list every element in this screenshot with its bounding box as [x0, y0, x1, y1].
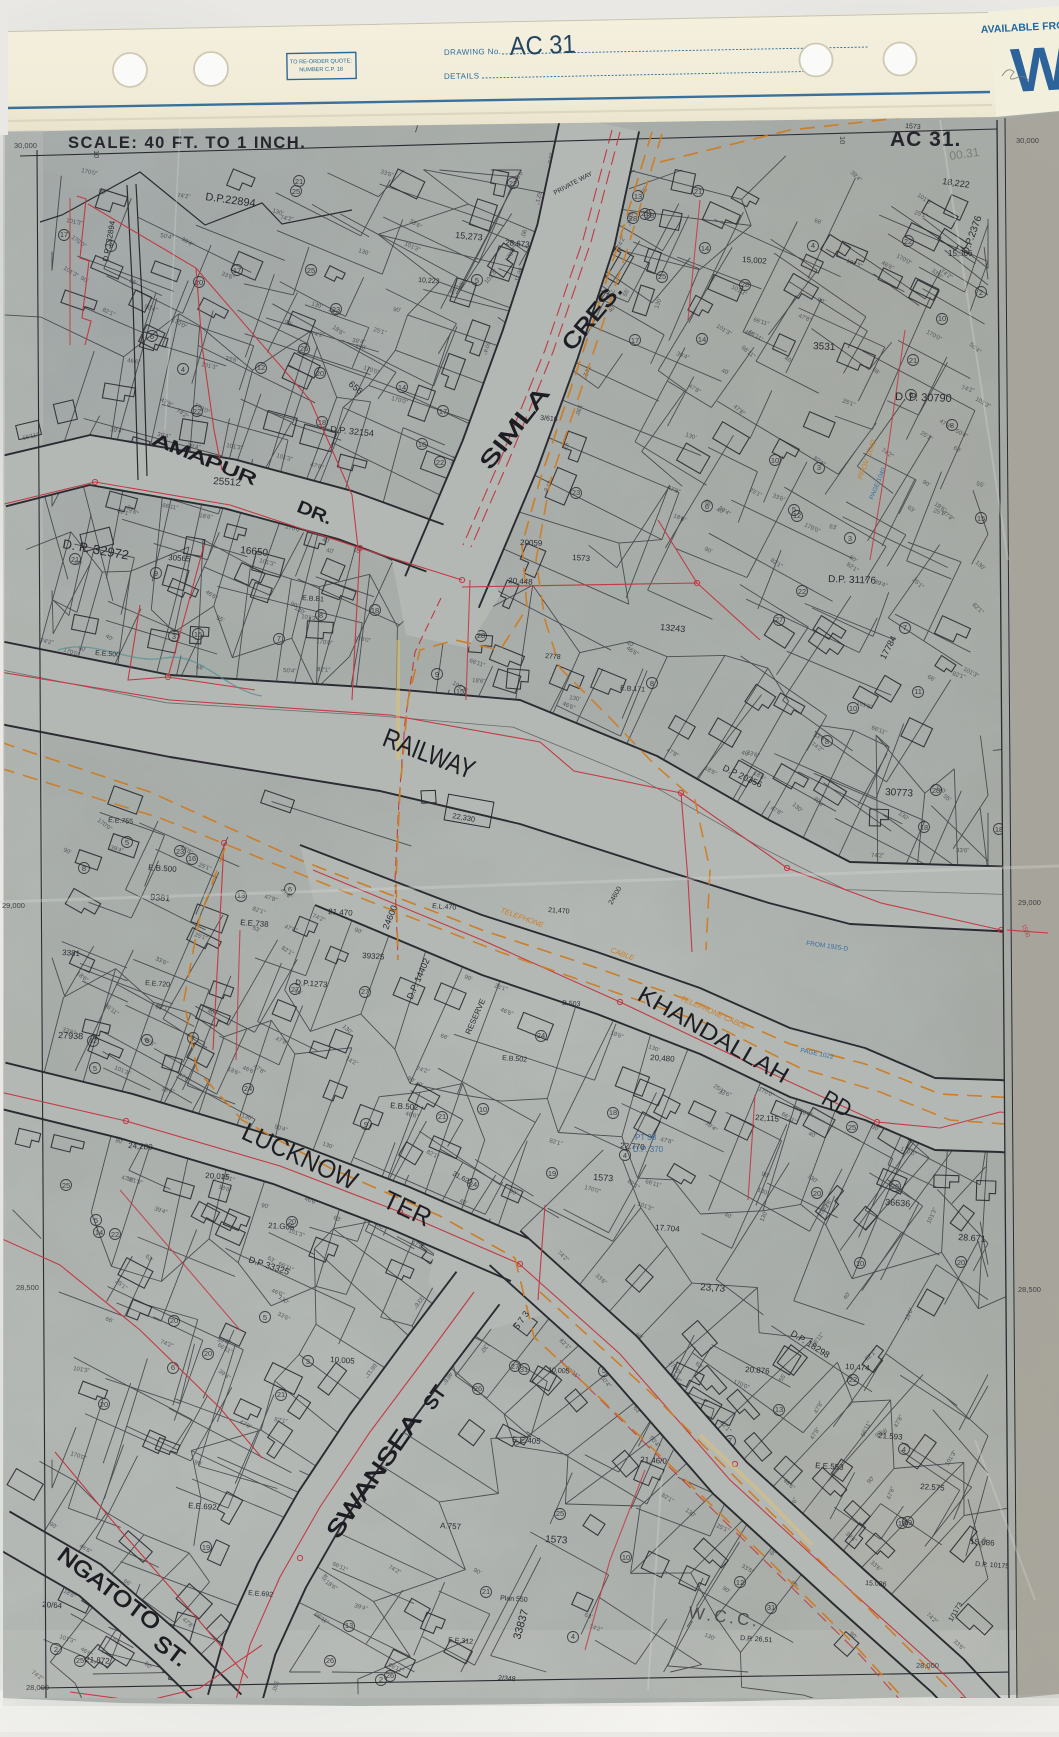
- svg-text:10: 10: [771, 456, 779, 465]
- svg-text:17: 17: [233, 266, 241, 275]
- svg-text:21: 21: [71, 555, 79, 564]
- svg-text:21: 21: [277, 1390, 285, 1399]
- svg-text:21,46/0: 21,46/0: [640, 1455, 668, 1466]
- svg-text:19: 19: [548, 1169, 556, 1178]
- svg-text:23,73: 23,73: [700, 1282, 726, 1295]
- svg-text:18'6": 18'6": [472, 678, 486, 685]
- svg-text:31: 31: [767, 1603, 775, 1612]
- svg-text:3: 3: [172, 632, 176, 641]
- svg-text:1573: 1573: [905, 123, 921, 131]
- svg-text:DETAILS: DETAILS: [444, 71, 480, 81]
- svg-text:21.G05: 21.G05: [268, 1221, 295, 1232]
- svg-text:15: 15: [977, 514, 985, 523]
- svg-text:6: 6: [150, 332, 154, 341]
- svg-text:20: 20: [204, 1349, 212, 1358]
- svg-text:28: 28: [477, 631, 485, 640]
- svg-text:2: 2: [54, 1645, 58, 1654]
- svg-text:8: 8: [650, 679, 654, 688]
- svg-text:20: 20: [957, 1258, 965, 1267]
- svg-text:33'6": 33'6": [956, 848, 969, 854]
- svg-text:1573: 1573: [572, 553, 591, 563]
- svg-text:74'2": 74'2": [871, 853, 884, 859]
- svg-text:8: 8: [950, 421, 954, 430]
- svg-text:14: 14: [398, 383, 406, 392]
- svg-text:9: 9: [364, 1120, 368, 1129]
- svg-text:17.704: 17.704: [655, 1223, 681, 1234]
- svg-text:26: 26: [300, 344, 308, 353]
- svg-text:20,480: 20,480: [650, 1053, 676, 1064]
- svg-text:10.474: 10.474: [845, 1362, 871, 1373]
- svg-text:26: 26: [474, 1384, 482, 1393]
- svg-text:23: 23: [332, 305, 340, 314]
- svg-text:1573: 1573: [545, 1534, 568, 1547]
- svg-text:22.575: 22.575: [920, 1482, 946, 1493]
- svg-text:28,000: 28,000: [916, 1661, 939, 1670]
- svg-text:12: 12: [257, 363, 265, 372]
- svg-text:82'1": 82'1": [317, 667, 331, 674]
- svg-text:5: 5: [94, 1216, 98, 1225]
- svg-text:10,223: 10,223: [418, 277, 440, 285]
- svg-text:10: 10: [849, 704, 857, 713]
- svg-text:10: 10: [938, 314, 946, 323]
- svg-text:3531: 3531: [813, 341, 836, 353]
- svg-text:28: 28: [741, 280, 749, 289]
- svg-text:5: 5: [263, 1313, 267, 1322]
- svg-text:16: 16: [188, 854, 196, 863]
- svg-text:9: 9: [435, 670, 439, 679]
- svg-text:22,770: 22,770: [620, 1141, 646, 1152]
- svg-text:14: 14: [698, 335, 706, 344]
- svg-text:8: 8: [82, 864, 86, 873]
- svg-text:20,448: 20,448: [508, 576, 534, 587]
- svg-text:10,005: 10,005: [548, 1367, 570, 1375]
- svg-text:36636: 36636: [885, 1197, 911, 1209]
- svg-text:23: 23: [176, 847, 184, 856]
- svg-text:25: 25: [76, 1656, 84, 1665]
- svg-text:25: 25: [848, 1123, 856, 1132]
- svg-text:30773: 30773: [885, 787, 914, 799]
- svg-text:90': 90': [393, 307, 402, 314]
- svg-text:28: 28: [932, 786, 940, 795]
- svg-text:W: W: [1009, 34, 1059, 106]
- svg-text:31: 31: [520, 1365, 528, 1374]
- svg-text:4: 4: [902, 1445, 906, 1454]
- svg-text:5: 5: [125, 838, 129, 847]
- svg-text:5: 5: [93, 1064, 97, 1073]
- svg-text:26: 26: [386, 1671, 394, 1680]
- svg-text:25: 25: [658, 272, 666, 281]
- svg-text:24,280: 24,280: [128, 1141, 154, 1152]
- svg-text:15.086: 15.086: [865, 1580, 887, 1588]
- svg-text:18: 18: [371, 606, 379, 615]
- svg-text:21: 21: [909, 356, 917, 365]
- svg-text:30,000: 30,000: [1016, 136, 1039, 145]
- svg-text:27938: 27938: [58, 1030, 84, 1041]
- svg-text:10: 10: [622, 1553, 630, 1562]
- svg-text:18: 18: [609, 1108, 617, 1117]
- svg-text:4: 4: [811, 241, 815, 250]
- svg-text:B.503: B.503: [562, 1000, 581, 1008]
- svg-text:14: 14: [95, 1228, 103, 1237]
- svg-text:20.876: 20.876: [745, 1365, 771, 1376]
- svg-text:40': 40': [326, 548, 335, 555]
- svg-text:29,000: 29,000: [1018, 898, 1041, 907]
- svg-text:NUMBER C.P. 18: NUMBER C.P. 18: [299, 67, 343, 74]
- svg-text:7: 7: [903, 623, 907, 632]
- svg-text:27: 27: [511, 1362, 519, 1371]
- svg-text:13: 13: [345, 1621, 353, 1630]
- svg-text:20,015: 20,015: [205, 1171, 231, 1182]
- svg-text:SCALE: 40 FT. TO 1 INCH.: SCALE: 40 FT. TO 1 INCH.: [68, 134, 306, 152]
- svg-text:10: 10: [92, 150, 101, 158]
- svg-text:22: 22: [904, 237, 912, 246]
- svg-text:12: 12: [89, 1036, 97, 1045]
- svg-text:TO RE-ORDER QUOTE:: TO RE-ORDER QUOTE:: [290, 58, 353, 65]
- svg-text:6: 6: [705, 502, 709, 511]
- svg-text:10: 10: [479, 1105, 487, 1114]
- svg-text:10: 10: [838, 136, 847, 144]
- svg-text:23: 23: [572, 488, 580, 497]
- svg-text:8: 8: [319, 611, 323, 620]
- svg-text:20059: 20059: [520, 538, 543, 548]
- svg-text:20: 20: [100, 1400, 108, 1409]
- svg-text:12: 12: [736, 1578, 744, 1587]
- svg-text:14: 14: [701, 244, 709, 253]
- svg-text:30,000: 30,000: [14, 141, 37, 150]
- svg-text:15: 15: [194, 630, 202, 639]
- svg-text:3: 3: [306, 1357, 310, 1366]
- svg-text:22: 22: [849, 1375, 857, 1384]
- svg-text:PT 38: PT 38: [635, 1133, 657, 1142]
- svg-text:1573: 1573: [593, 1172, 614, 1183]
- svg-text:2778: 2778: [545, 653, 561, 661]
- svg-text:28,500: 28,500: [1018, 1285, 1041, 1294]
- svg-text:25: 25: [292, 187, 300, 196]
- svg-text:21,470: 21,470: [328, 907, 354, 918]
- svg-text:16: 16: [418, 440, 426, 449]
- svg-text:3: 3: [848, 534, 852, 543]
- svg-text:15,002: 15,002: [742, 255, 768, 266]
- svg-text:13: 13: [775, 1405, 783, 1414]
- svg-text:DRAWING No.: DRAWING No.: [444, 47, 502, 57]
- svg-text:28,500: 28,500: [16, 1283, 39, 1292]
- svg-text:20: 20: [195, 278, 203, 287]
- svg-text:21: 21: [641, 209, 649, 218]
- svg-text:6: 6: [145, 1036, 149, 1045]
- svg-text:25: 25: [556, 1509, 564, 1518]
- svg-text:22: 22: [193, 407, 201, 416]
- svg-text:3/616: 3/616: [540, 415, 558, 423]
- svg-text:26: 26: [326, 1656, 334, 1665]
- svg-text:18: 18: [920, 823, 928, 832]
- svg-text:20/64: 20/64: [42, 1600, 63, 1610]
- svg-text:A.757: A.757: [440, 1521, 462, 1531]
- svg-text:21,872: 21,872: [85, 1655, 111, 1666]
- svg-text:39325: 39325: [362, 951, 385, 962]
- svg-text:19: 19: [904, 1518, 912, 1527]
- svg-text:19: 19: [202, 1543, 210, 1552]
- svg-text:AC 31: AC 31: [509, 29, 576, 61]
- svg-text:17: 17: [631, 336, 639, 345]
- svg-text:21: 21: [694, 187, 702, 196]
- svg-text:21,470: 21,470: [548, 907, 570, 915]
- svg-text:8: 8: [825, 737, 829, 746]
- svg-text:24: 24: [244, 1084, 252, 1093]
- svg-text:17: 17: [60, 230, 68, 239]
- svg-text:28,000: 28,000: [26, 1683, 49, 1692]
- svg-text:27: 27: [775, 615, 783, 624]
- svg-text:28: 28: [629, 214, 637, 223]
- svg-text:24: 24: [537, 1031, 545, 1040]
- svg-text:4: 4: [571, 1632, 575, 1641]
- svg-text:21: 21: [438, 1112, 446, 1121]
- svg-text:20: 20: [316, 369, 324, 378]
- svg-text:22: 22: [436, 458, 444, 467]
- svg-text:25512: 25512: [213, 476, 242, 489]
- svg-text:4: 4: [181, 365, 185, 374]
- svg-text:21: 21: [482, 1587, 490, 1596]
- svg-text:21: 21: [295, 177, 303, 186]
- svg-text:4: 4: [623, 1151, 627, 1160]
- svg-text:25: 25: [307, 266, 315, 275]
- svg-text:D.P. 31176: D.P. 31176: [828, 574, 877, 587]
- svg-text:50'4": 50'4": [283, 668, 297, 675]
- svg-text:26: 26: [891, 1182, 899, 1191]
- svg-text:17: 17: [439, 407, 447, 416]
- svg-text:20: 20: [170, 1316, 178, 1325]
- svg-text:10,005: 10,005: [330, 1355, 356, 1366]
- svg-text:25: 25: [62, 1181, 70, 1190]
- svg-text:22,115: 22,115: [755, 1113, 780, 1124]
- svg-text:7: 7: [277, 634, 281, 643]
- svg-text:D. P. 30790: D. P. 30790: [895, 391, 952, 405]
- svg-text:5: 5: [475, 276, 479, 285]
- svg-text:AC 31.: AC 31.: [890, 128, 961, 151]
- svg-text:2: 2: [979, 288, 983, 297]
- svg-text:15.086: 15.086: [970, 1537, 996, 1548]
- svg-text:30565: 30565: [168, 553, 191, 564]
- svg-text:3381: 3381: [62, 948, 81, 958]
- svg-text:11: 11: [914, 687, 922, 696]
- svg-text:10: 10: [856, 1259, 864, 1268]
- svg-text:22: 22: [509, 179, 517, 188]
- svg-text:21.593: 21.593: [878, 1431, 904, 1442]
- svg-text:13: 13: [634, 192, 642, 201]
- svg-text:2/348: 2/348: [498, 1675, 516, 1683]
- svg-text:22: 22: [798, 587, 806, 596]
- svg-text:28.671: 28.671: [958, 1232, 986, 1244]
- svg-text:3: 3: [817, 463, 821, 472]
- svg-text:27: 27: [361, 987, 369, 996]
- svg-text:20: 20: [813, 1189, 821, 1198]
- svg-text:22: 22: [111, 1230, 119, 1239]
- svg-text:5: 5: [792, 505, 796, 514]
- svg-text:9: 9: [154, 569, 158, 578]
